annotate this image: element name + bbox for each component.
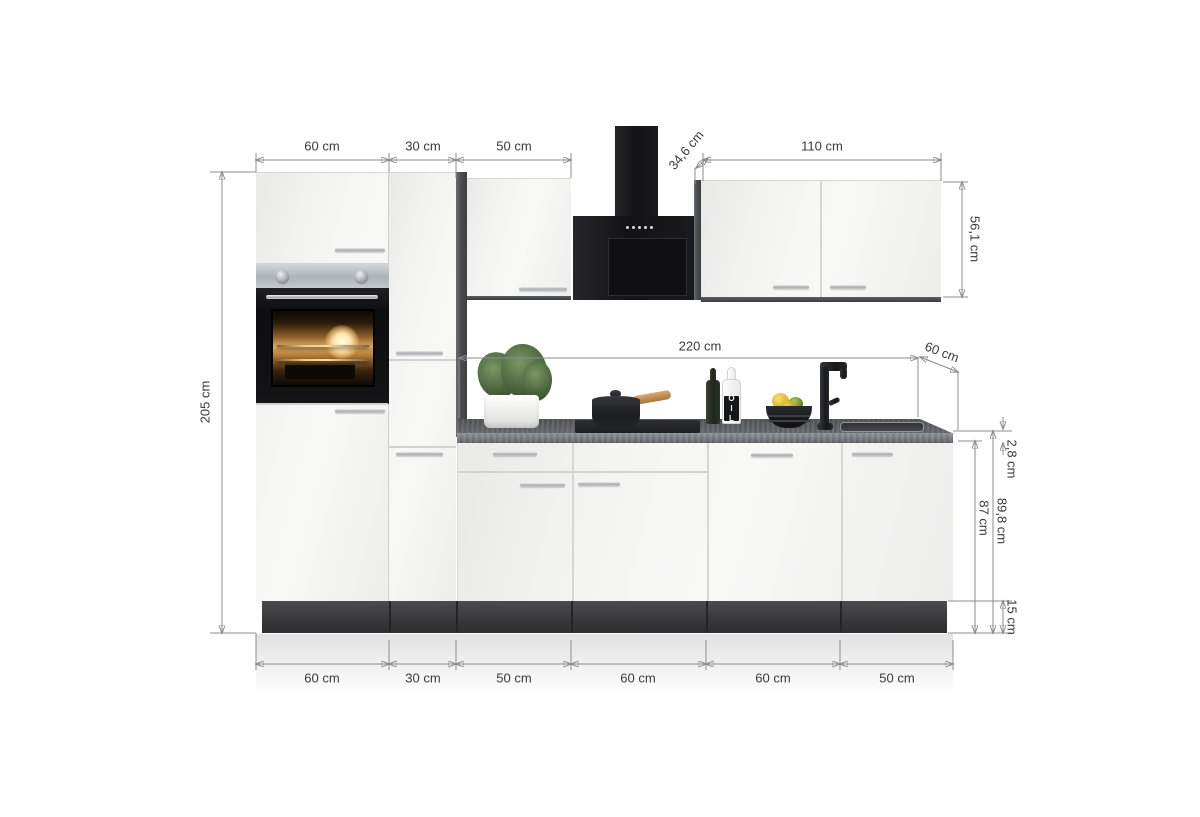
- faucet-column: [820, 367, 829, 425]
- kitchen-product-diagram: OIL: [0, 0, 1200, 817]
- wall-cabinet-side-shadow: [694, 180, 701, 300]
- oven-lamp-glow: [325, 325, 359, 359]
- cabinet-seam: [572, 443, 574, 601]
- saucepan: [592, 401, 640, 428]
- base-cabinets: [457, 443, 953, 601]
- hood-glass-panel: [608, 238, 687, 296]
- door-handle: [396, 452, 443, 456]
- dim-bottom-50a: 50 cm: [496, 671, 531, 686]
- drawer-seam: [458, 471, 707, 473]
- dim-bottom-50b: 50 cm: [879, 671, 914, 686]
- door-seam: [389, 446, 456, 448]
- dim-top-30: 30 cm: [405, 139, 440, 154]
- dim-bottom-60a: 60 cm: [304, 671, 339, 686]
- hood-button: [644, 226, 647, 229]
- dim-top-50: 50 cm: [496, 139, 531, 154]
- hood-button: [632, 226, 635, 229]
- oven-window: [271, 309, 375, 387]
- hood-button: [638, 226, 641, 229]
- cabinet-underside: [467, 296, 571, 300]
- oven-handle: [266, 295, 378, 299]
- door-seam: [256, 403, 388, 405]
- plinth-seam: [456, 601, 458, 633]
- faucet-spout-tip: [840, 368, 847, 379]
- door-handle: [520, 483, 565, 487]
- hood-button: [650, 226, 653, 229]
- door-handle: [519, 287, 567, 291]
- dim-bottom-60b: 60 cm: [620, 671, 655, 686]
- door-seam: [389, 359, 456, 361]
- dim-wall-width: 110 cm: [801, 139, 843, 154]
- plinth-seam: [389, 601, 391, 633]
- extractor-hood: [573, 216, 700, 300]
- plinth: [262, 601, 947, 633]
- faucet-lever: [828, 397, 841, 407]
- door-seam: [820, 181, 822, 302]
- dim-counter-depth: 60 cm: [923, 339, 961, 366]
- bowl-rim: [768, 415, 810, 417]
- dim-total-height: 205 cm: [198, 381, 213, 424]
- hood-button: [626, 226, 629, 229]
- lower-door-handle: [335, 409, 385, 413]
- dim-base-height: 87 cm: [977, 500, 992, 535]
- drawer-handle: [493, 452, 537, 456]
- oven-rack: [277, 345, 369, 347]
- dim-top-60: 60 cm: [304, 139, 339, 154]
- tall-cabinet-30: [389, 172, 456, 601]
- oven-rack: [277, 359, 369, 361]
- plinth-seam: [840, 601, 842, 633]
- vinegar-bottle: [706, 380, 720, 424]
- oven-knob-right: [355, 270, 368, 283]
- oven-control-panel: [256, 264, 389, 288]
- plinth-seam: [706, 601, 708, 633]
- planter-pot: [484, 395, 539, 428]
- oil-bottle-label: OIL: [724, 396, 739, 421]
- worktop-front-edge: [457, 433, 953, 443]
- door-handle: [751, 453, 793, 457]
- plinth-seam: [571, 601, 573, 633]
- cabinet-seam: [707, 443, 709, 601]
- dim-counter-thickness: 2,8 cm: [1005, 439, 1020, 478]
- upper-door-handle: [335, 248, 385, 252]
- tall-cabinet-oven: [256, 172, 389, 601]
- floor-reflection: [256, 634, 953, 696]
- left-door-handle: [773, 285, 809, 289]
- bowl-rim: [768, 420, 810, 422]
- oven-knob-left: [276, 270, 289, 283]
- hood-chimney: [615, 126, 658, 218]
- sink-basin: [840, 422, 924, 432]
- door-handle: [396, 351, 443, 355]
- dim-counter-level-height: 89,8 cm: [995, 498, 1010, 544]
- oil-label-text: OIL: [727, 394, 736, 424]
- cabinet-seam: [841, 443, 843, 601]
- side-panel: [456, 172, 467, 437]
- dim-counter-width: 220 cm: [679, 339, 722, 354]
- wall-cabinet-110: [701, 180, 941, 302]
- door-handle: [852, 452, 893, 456]
- cabinet-underside: [701, 297, 941, 302]
- built-in-oven: [256, 288, 389, 404]
- dim-bottom-30: 30 cm: [405, 671, 440, 686]
- baking-tray: [285, 363, 355, 379]
- wall-cabinet-50: [467, 178, 571, 300]
- dim-wall-height: 56,1 cm: [968, 216, 983, 262]
- faucet-base: [817, 423, 833, 430]
- dim-plinth-height: 15 cm: [1005, 599, 1020, 634]
- dim-bottom-60c: 60 cm: [755, 671, 790, 686]
- right-door-handle: [830, 285, 866, 289]
- door-handle: [578, 482, 620, 486]
- dim-hood-depth: 34,6 cm: [665, 127, 706, 172]
